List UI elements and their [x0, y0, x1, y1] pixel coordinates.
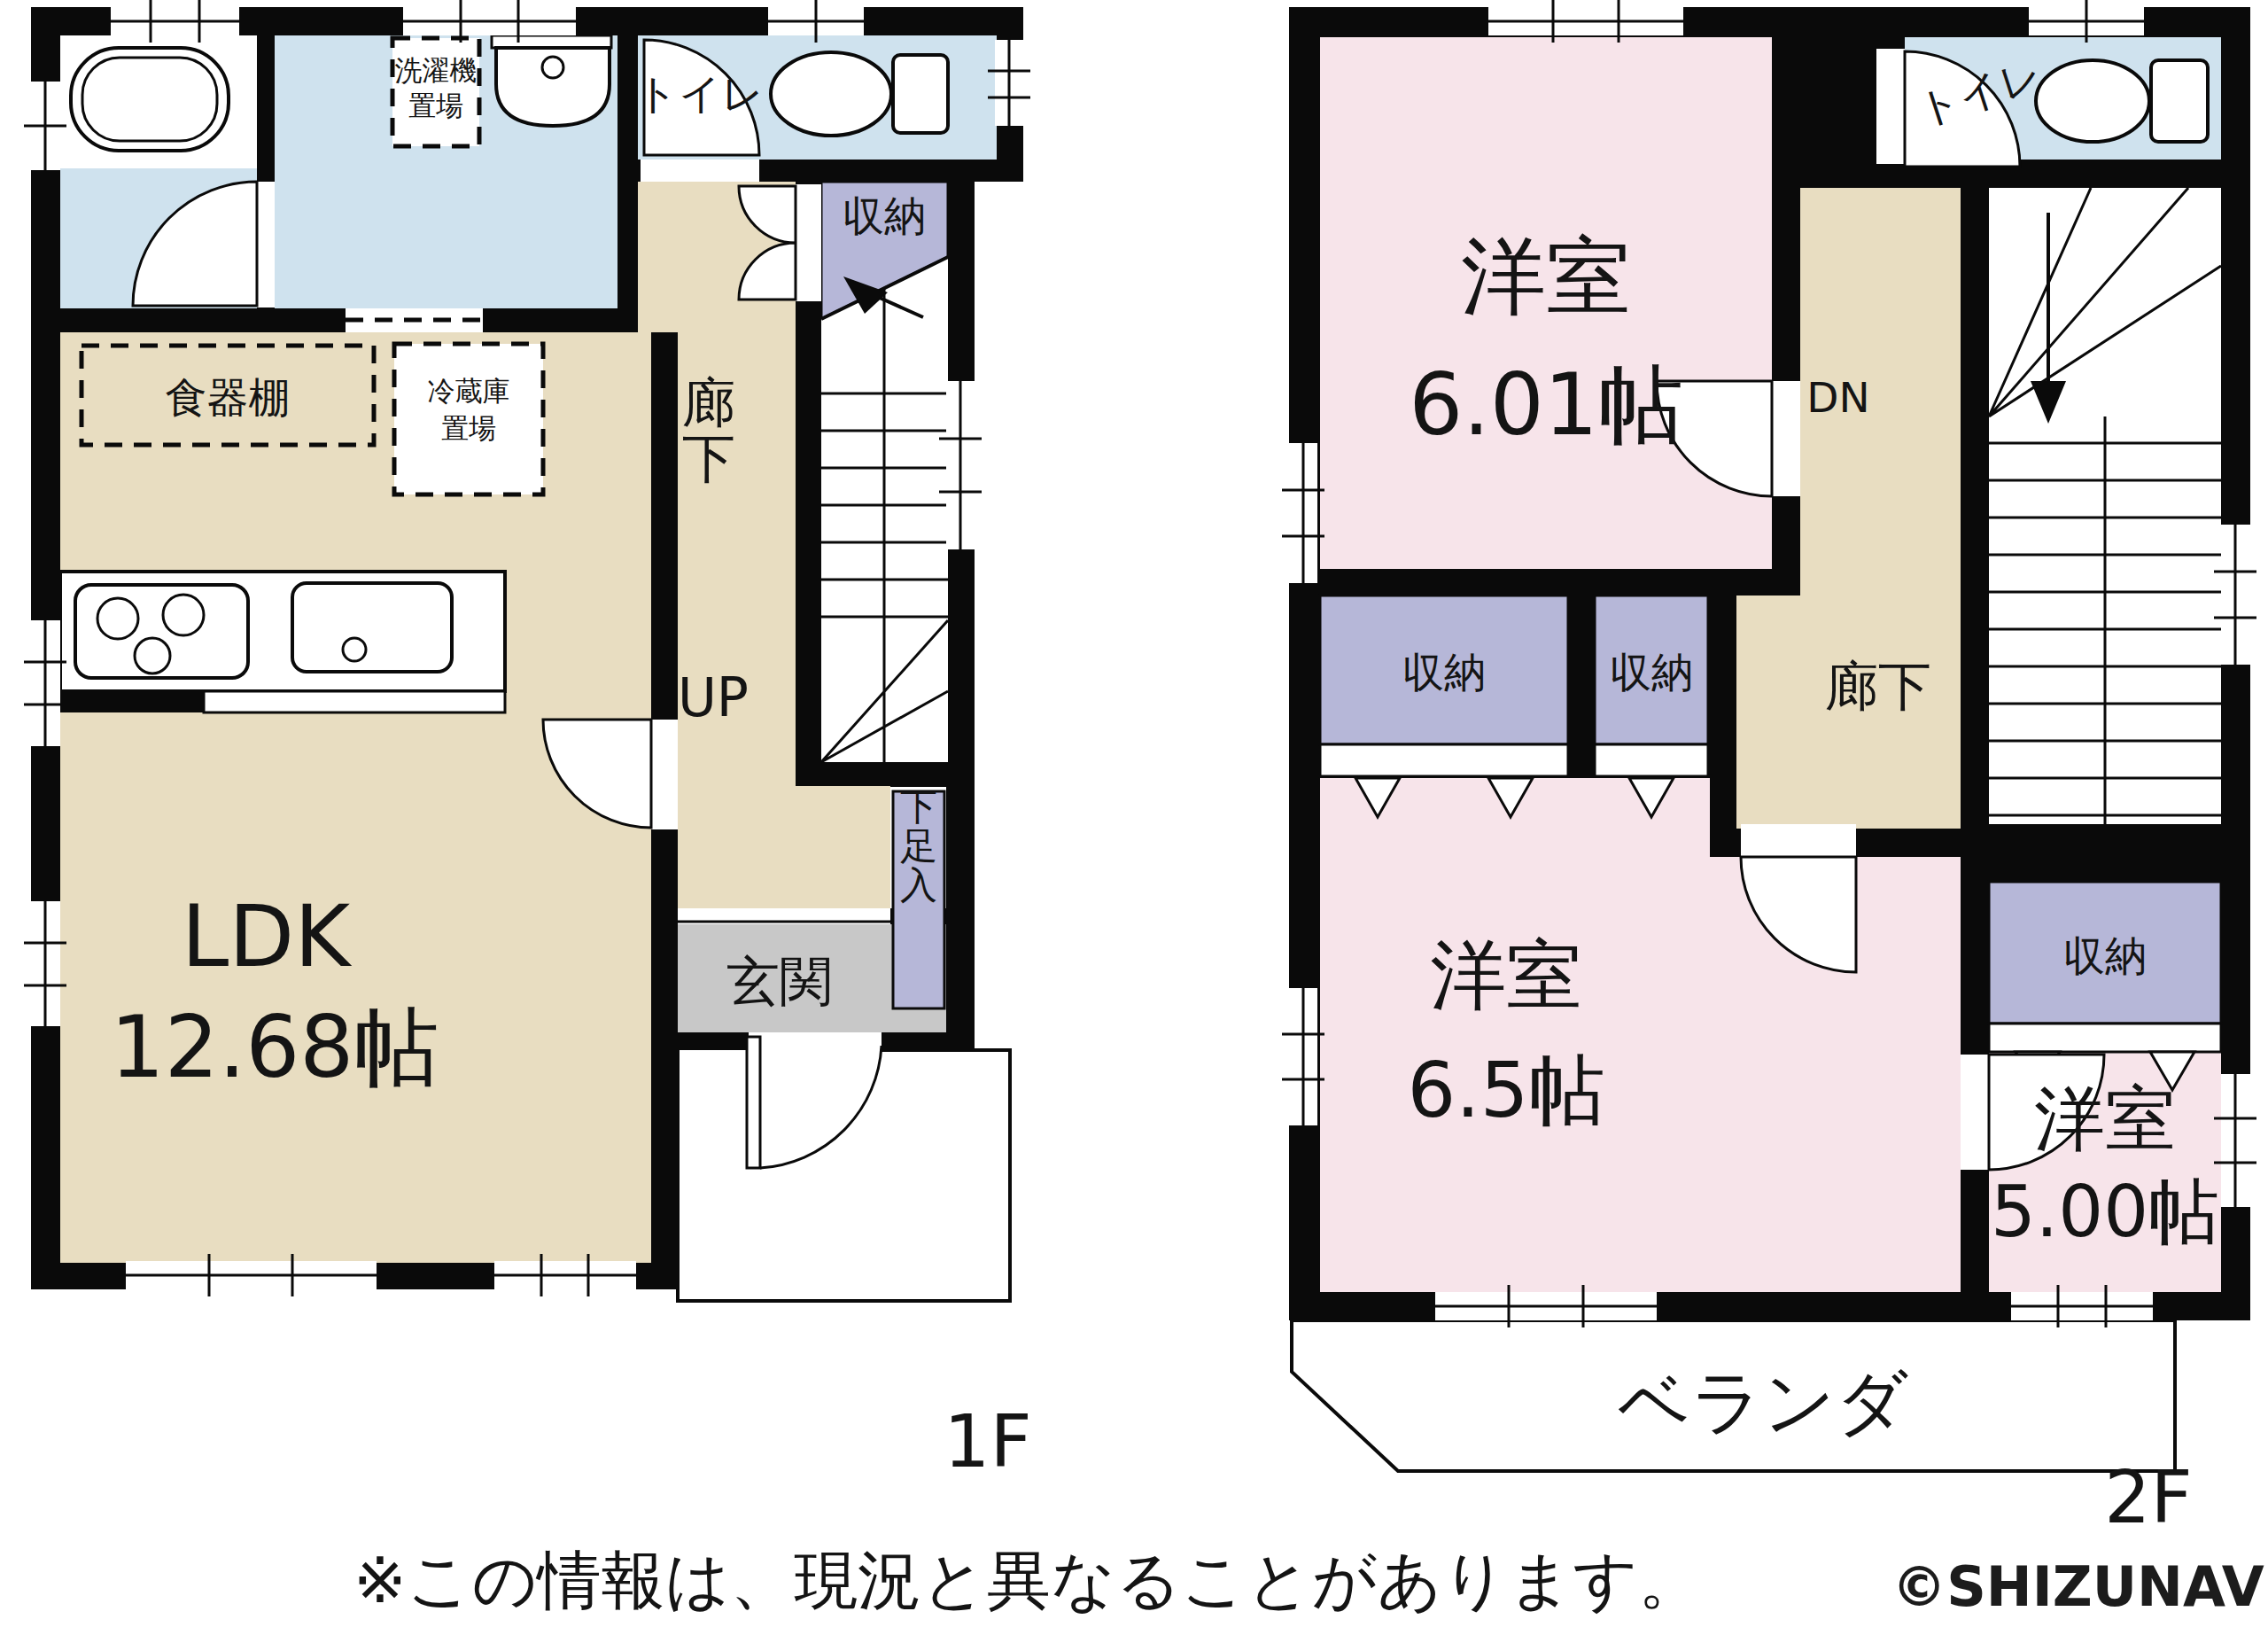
kitchen-counter-icon [31, 572, 505, 712]
closet1f-door-gap [796, 184, 821, 301]
closet1f-label: 収納 [843, 191, 926, 240]
entrance-label: 玄関 [726, 950, 833, 1012]
footer: ※この情報は、現況と異なることがあります。 ©SHIZUNAVI [353, 1543, 2268, 1619]
window-icon [24, 901, 66, 1026]
floor2-plan: 洋室 6.01帖 トイレ DN 収納 収納 廊下 収納 洋室 6.5帖 洋室 5… [1282, 0, 2256, 1539]
closet2f-c-label: 収納 [2063, 931, 2147, 980]
bedroom1-size-label: 6.01帖 [1409, 355, 1683, 455]
hallway2-label: 廊下 [1825, 655, 1931, 717]
floorplan-drawing: 洗濯機 置場 [0, 0, 2268, 1627]
shoe-cabinet-label: 下足入 [900, 785, 937, 907]
toilet1-door-gap [641, 160, 759, 182]
down-label: DN [1806, 373, 1869, 422]
bedroom2-door-gap [1741, 824, 1856, 857]
up-label: UP [678, 666, 749, 728]
toilet2-door-gap [1876, 49, 1905, 164]
bedroom3-label: 洋室 [2034, 1078, 2176, 1160]
cupboard-label: 食器棚 [166, 373, 291, 422]
floor1-plan: 洗濯機 置場 [24, 0, 1032, 1483]
copyright-label: ©SHIZUNAVI [1891, 1554, 2268, 1619]
laundry-space: 洗濯機 置場 [392, 38, 479, 146]
fridge-label-line1: 冷蔵庫 [428, 375, 510, 407]
bedroom3-door-gap [1961, 1055, 1989, 1170]
washbasin-icon [492, 35, 611, 126]
entrance-door-gap [749, 1032, 882, 1050]
bedroom2-size-label: 6.5帖 [1408, 1046, 1605, 1134]
window-icon [24, 620, 66, 746]
closet2f-b-label: 収納 [1610, 648, 1693, 697]
floor1-label: 1F [944, 1399, 1031, 1483]
fridge-label-line2: 置場 [441, 412, 496, 444]
bedroom1-label: 洋室 [1461, 227, 1631, 326]
floor2-label: 2F [2104, 1455, 2192, 1539]
hallway1-label: 廊下 [682, 371, 735, 489]
floorplan-page: 洗濯機 置場 [0, 0, 2268, 1627]
toilet1-fixture-icon [771, 52, 948, 136]
laundry-label-line2: 置場 [408, 90, 463, 121]
bedroom2-label: 洋室 [1430, 930, 1582, 1019]
ldk-floor [60, 332, 651, 1263]
toilet2-fixture-icon [2036, 60, 2208, 142]
veranda-label: ベランダ [1618, 1361, 1908, 1444]
ldk-door-gap [651, 720, 678, 829]
toilet1-label: トイレ [636, 69, 764, 118]
bedroom1-door-gap [1772, 381, 1800, 496]
ldk-label: LDK [182, 887, 352, 986]
bathroom-door-gap [257, 182, 275, 307]
entrance-porch [678, 1050, 1010, 1301]
laundry-label-line1: 洗濯機 [395, 54, 478, 86]
closet2f-a-label: 収納 [1402, 648, 1486, 697]
entrance-door-leaf [747, 1037, 760, 1168]
window-icon [24, 82, 66, 170]
disclaimer-note: ※この情報は、現況と異なることがあります。 [353, 1543, 1702, 1617]
ldk-size-label: 12.68帖 [111, 998, 439, 1097]
bathtub-icon [71, 48, 229, 151]
fridge-space: 冷蔵庫 置場 [394, 344, 543, 494]
bedroom3-size-label: 5.00帖 [1991, 1171, 2219, 1253]
